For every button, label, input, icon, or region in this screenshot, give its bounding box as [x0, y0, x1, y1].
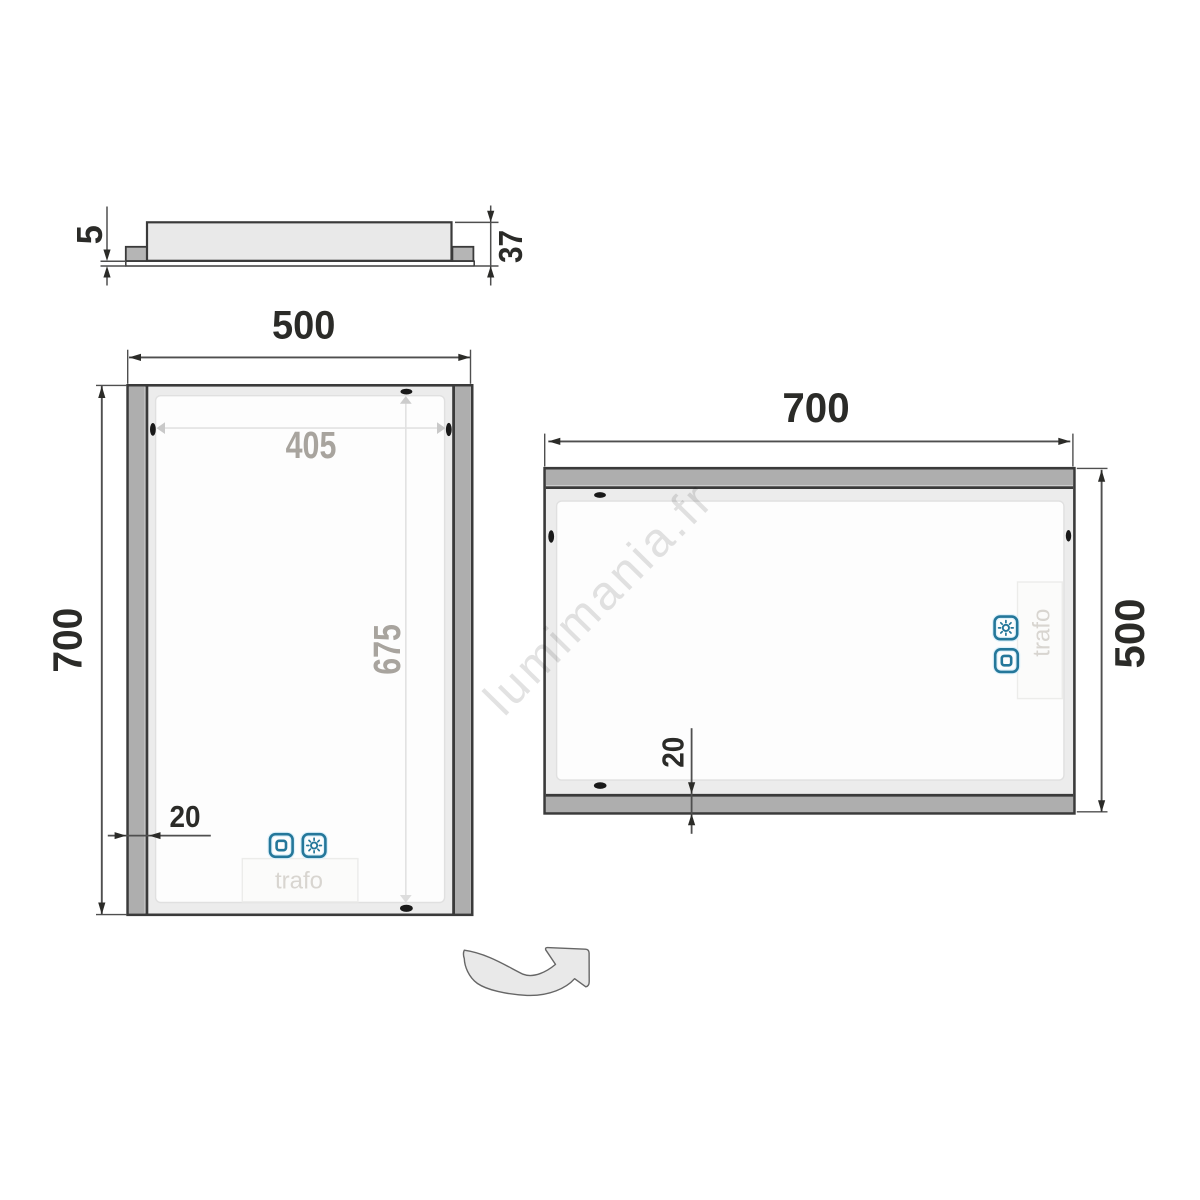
- svg-text:500: 500: [272, 304, 335, 348]
- svg-text:700: 700: [782, 384, 849, 431]
- svg-text:20: 20: [169, 800, 200, 835]
- svg-text:trafo: trafo: [275, 868, 323, 895]
- svg-text:5: 5: [70, 225, 110, 244]
- svg-text:700: 700: [46, 608, 91, 673]
- svg-text:675: 675: [367, 624, 409, 675]
- svg-text:405: 405: [286, 425, 337, 467]
- svg-text:500: 500: [1106, 598, 1153, 668]
- svg-text:trafo: trafo: [1029, 609, 1056, 657]
- svg-text:37: 37: [493, 230, 530, 263]
- svg-text:20: 20: [656, 737, 691, 768]
